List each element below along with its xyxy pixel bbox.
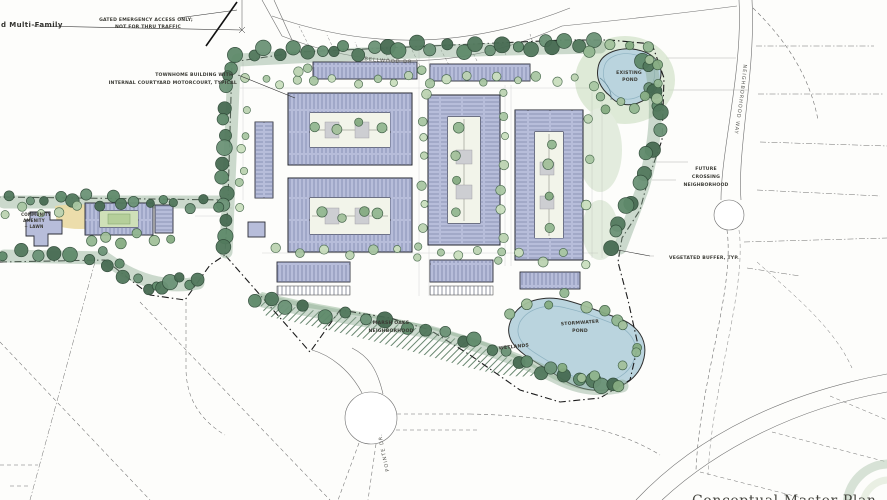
tree — [421, 200, 428, 207]
tree — [415, 243, 422, 250]
tree — [199, 195, 208, 204]
tree — [337, 41, 348, 52]
tree — [40, 197, 49, 206]
building-small-west — [248, 222, 265, 237]
tree — [467, 332, 481, 346]
legend-multifamily-label: d Multi-Family — [1, 21, 63, 29]
stormwater-pond-line2: POND — [572, 328, 588, 334]
tree — [499, 112, 507, 120]
tree — [47, 247, 61, 261]
tree — [521, 299, 532, 310]
tree — [317, 46, 328, 57]
tree — [571, 74, 578, 81]
tree — [581, 302, 592, 313]
marsh-oaks-line2: NEIGHBORHOOD — [368, 328, 413, 334]
tree — [652, 93, 663, 104]
tree — [409, 35, 424, 50]
existing-pond-label-line1: EXISTING — [616, 70, 642, 76]
tree — [217, 113, 229, 125]
tree — [521, 356, 533, 368]
building-bar-bottom-1 — [277, 262, 350, 282]
tree — [134, 274, 143, 283]
tree — [309, 76, 318, 85]
tree — [596, 92, 605, 101]
tree — [505, 309, 515, 319]
tree — [332, 124, 342, 134]
tree — [584, 46, 595, 57]
tree — [146, 199, 154, 207]
tree — [545, 362, 557, 374]
tree — [654, 79, 662, 87]
tree — [453, 176, 461, 184]
building-bar-bottom-3 — [520, 272, 580, 289]
courtyard-building-sw — [288, 178, 412, 252]
tree — [639, 146, 652, 159]
tree — [4, 191, 14, 201]
tree — [265, 292, 279, 306]
tree — [654, 123, 667, 136]
tree — [338, 214, 347, 223]
gated-note-line2: NOT FOR THRU TRAFFIC — [115, 24, 182, 30]
tree — [499, 233, 508, 242]
tree — [605, 40, 615, 50]
tree — [653, 60, 663, 70]
courtyard-building-center — [428, 95, 500, 245]
townhome-note-line1: TOWNHOME BUILDING WITH — [155, 72, 233, 78]
tree — [214, 202, 224, 212]
tree — [492, 72, 501, 81]
tree — [494, 37, 510, 53]
tree — [263, 75, 270, 82]
road-label-right: NEIGHBORHOOD WAY — [732, 64, 747, 135]
tree — [414, 254, 421, 261]
tree — [215, 170, 229, 184]
tree — [496, 185, 506, 195]
tree — [425, 79, 434, 88]
site-plan-sheet: d Multi-Family GATED EMERGENCY ACCESS ON… — [0, 0, 887, 500]
tree — [369, 245, 379, 255]
tree — [560, 288, 569, 297]
tree — [618, 361, 627, 370]
tree — [301, 45, 315, 59]
tree — [294, 67, 304, 77]
tree — [640, 91, 649, 100]
tree — [296, 249, 305, 258]
tree — [167, 235, 175, 243]
tree — [538, 257, 548, 267]
tree — [618, 198, 634, 214]
tree — [240, 167, 247, 174]
amenity-label-line3: + LAWN — [24, 224, 43, 229]
tree — [274, 49, 286, 61]
tree — [442, 39, 453, 50]
tree — [255, 40, 271, 56]
courtyard-building-east — [515, 110, 583, 260]
tree — [15, 243, 28, 256]
tree — [319, 245, 328, 254]
tree — [515, 77, 522, 84]
tree — [487, 345, 498, 356]
tree — [220, 214, 232, 226]
tree — [236, 203, 244, 211]
tree — [237, 144, 246, 153]
tree — [499, 160, 509, 170]
tree — [116, 270, 129, 283]
tree — [318, 310, 332, 324]
tree — [346, 251, 355, 260]
tree — [297, 300, 308, 311]
tree — [524, 42, 539, 57]
tree — [629, 104, 639, 114]
tree — [372, 208, 383, 219]
tree — [589, 371, 599, 381]
tree — [420, 134, 428, 142]
tree — [26, 197, 34, 205]
tree — [132, 229, 141, 238]
tree — [369, 41, 382, 54]
tree — [419, 224, 428, 233]
tree — [581, 200, 591, 210]
tree — [480, 79, 488, 87]
tree — [394, 245, 401, 252]
tree — [116, 238, 127, 249]
site-plan-drawing: d Multi-Family GATED EMERGENCY ACCESS ON… — [0, 0, 887, 500]
tree — [271, 243, 281, 253]
tree — [355, 80, 363, 88]
tree — [286, 41, 300, 55]
tree — [553, 77, 562, 86]
tree — [175, 273, 185, 283]
tree — [582, 260, 590, 268]
tree — [243, 107, 250, 114]
tree — [643, 42, 653, 52]
tree — [128, 196, 139, 207]
tree — [361, 314, 372, 325]
townhome-note-line2: INTERNAL COURTYARD MOTORCOURT, TYPICAL — [109, 80, 237, 86]
tree — [437, 249, 444, 256]
tree — [420, 152, 427, 159]
tree — [18, 202, 27, 211]
tree — [496, 205, 505, 214]
tree — [56, 191, 67, 202]
tree — [404, 71, 412, 79]
tree — [473, 246, 481, 254]
tree — [545, 301, 553, 309]
tree — [418, 66, 427, 75]
tree — [303, 64, 312, 73]
tree — [227, 47, 242, 62]
tree — [500, 89, 507, 96]
tree — [217, 140, 233, 156]
tree — [545, 192, 553, 200]
tree — [390, 79, 397, 86]
parking-row — [277, 286, 493, 295]
tree — [600, 305, 611, 316]
tree — [559, 248, 567, 256]
emergency-access-gate-line — [206, 2, 237, 46]
existing-pond-label-line2: POND — [622, 77, 638, 83]
tree — [33, 250, 44, 261]
future-neighborhood-line2: CROSSING — [692, 174, 720, 180]
tree — [317, 207, 327, 217]
tree — [84, 254, 94, 264]
tree — [422, 89, 432, 99]
tree — [418, 117, 427, 126]
tree — [218, 102, 231, 115]
marsh-oaks-line1: MARSH OAKS — [373, 320, 410, 326]
tree — [87, 236, 97, 246]
tree — [115, 259, 124, 268]
tree — [352, 49, 365, 62]
tree — [453, 122, 464, 133]
tree — [72, 201, 81, 210]
tree — [63, 247, 78, 262]
tree — [452, 208, 461, 217]
tree — [498, 248, 506, 256]
vegetated-buffer-label: VEGETATED BUFFER, TYP. — [669, 255, 739, 261]
tree — [610, 225, 622, 237]
tree — [442, 75, 451, 84]
tree — [278, 300, 292, 314]
tree — [558, 363, 567, 372]
tree — [340, 307, 351, 318]
gated-note-line1: GATED EMERGENCY ACCESS ONLY; — [99, 17, 193, 23]
tree — [613, 381, 624, 392]
tree — [216, 240, 231, 255]
tree — [115, 198, 126, 209]
tree — [235, 178, 243, 186]
tree — [653, 105, 668, 120]
tree — [390, 43, 406, 59]
tree — [468, 37, 483, 52]
tree — [633, 175, 648, 190]
tree — [328, 75, 336, 83]
tree — [355, 118, 363, 126]
tree — [81, 189, 92, 200]
tree — [485, 45, 496, 56]
tree — [462, 72, 471, 81]
tree — [545, 223, 554, 232]
tree — [618, 321, 627, 330]
tree — [149, 235, 159, 245]
townhome-bar-west — [155, 205, 173, 233]
tree — [632, 348, 641, 357]
tree — [531, 72, 541, 82]
tree — [159, 195, 168, 204]
tree — [0, 252, 7, 261]
tree — [185, 204, 195, 214]
tree — [501, 133, 508, 140]
tree — [586, 155, 595, 164]
tree — [374, 75, 382, 83]
tree — [98, 247, 107, 256]
sheet-title: Conceptual Master Plan — [692, 493, 877, 500]
tree — [248, 294, 261, 307]
courtyard-building-nw — [288, 93, 412, 165]
tree — [54, 208, 64, 218]
amenity-label-line1: COMMUNITY — [21, 212, 51, 217]
tree — [454, 251, 463, 260]
tree — [451, 151, 461, 161]
tree — [101, 260, 113, 272]
tree — [543, 159, 554, 170]
tree — [101, 232, 111, 242]
tree — [626, 41, 634, 49]
tree — [514, 248, 523, 257]
tree — [276, 81, 284, 89]
tree — [617, 98, 625, 106]
tree — [557, 34, 572, 49]
tree — [360, 207, 370, 217]
tree — [377, 123, 387, 133]
tree — [420, 324, 432, 336]
tree — [191, 273, 204, 286]
amenity-label-line2: AMENITY — [23, 218, 45, 223]
tree — [216, 157, 229, 170]
tree — [310, 122, 320, 132]
tree — [293, 76, 301, 84]
tree — [169, 198, 177, 206]
building-bar-bottom-2 — [430, 260, 493, 282]
tree — [495, 257, 503, 265]
tree — [417, 181, 426, 190]
tree — [513, 42, 523, 52]
future-neighborhood-line1: FUTURE — [695, 166, 717, 172]
tree — [440, 326, 451, 337]
tree — [577, 374, 586, 383]
tree — [95, 201, 105, 211]
tree — [601, 105, 610, 114]
tree — [547, 140, 556, 149]
tree — [1, 211, 9, 219]
building-bar-west-edge — [255, 122, 273, 198]
future-neighborhood-line3: NEIGHBORHOOD — [683, 182, 728, 188]
tree — [242, 133, 249, 140]
tree — [604, 241, 619, 256]
tree — [589, 82, 598, 91]
tree — [587, 33, 602, 48]
tree — [424, 44, 436, 56]
tree — [584, 115, 593, 124]
